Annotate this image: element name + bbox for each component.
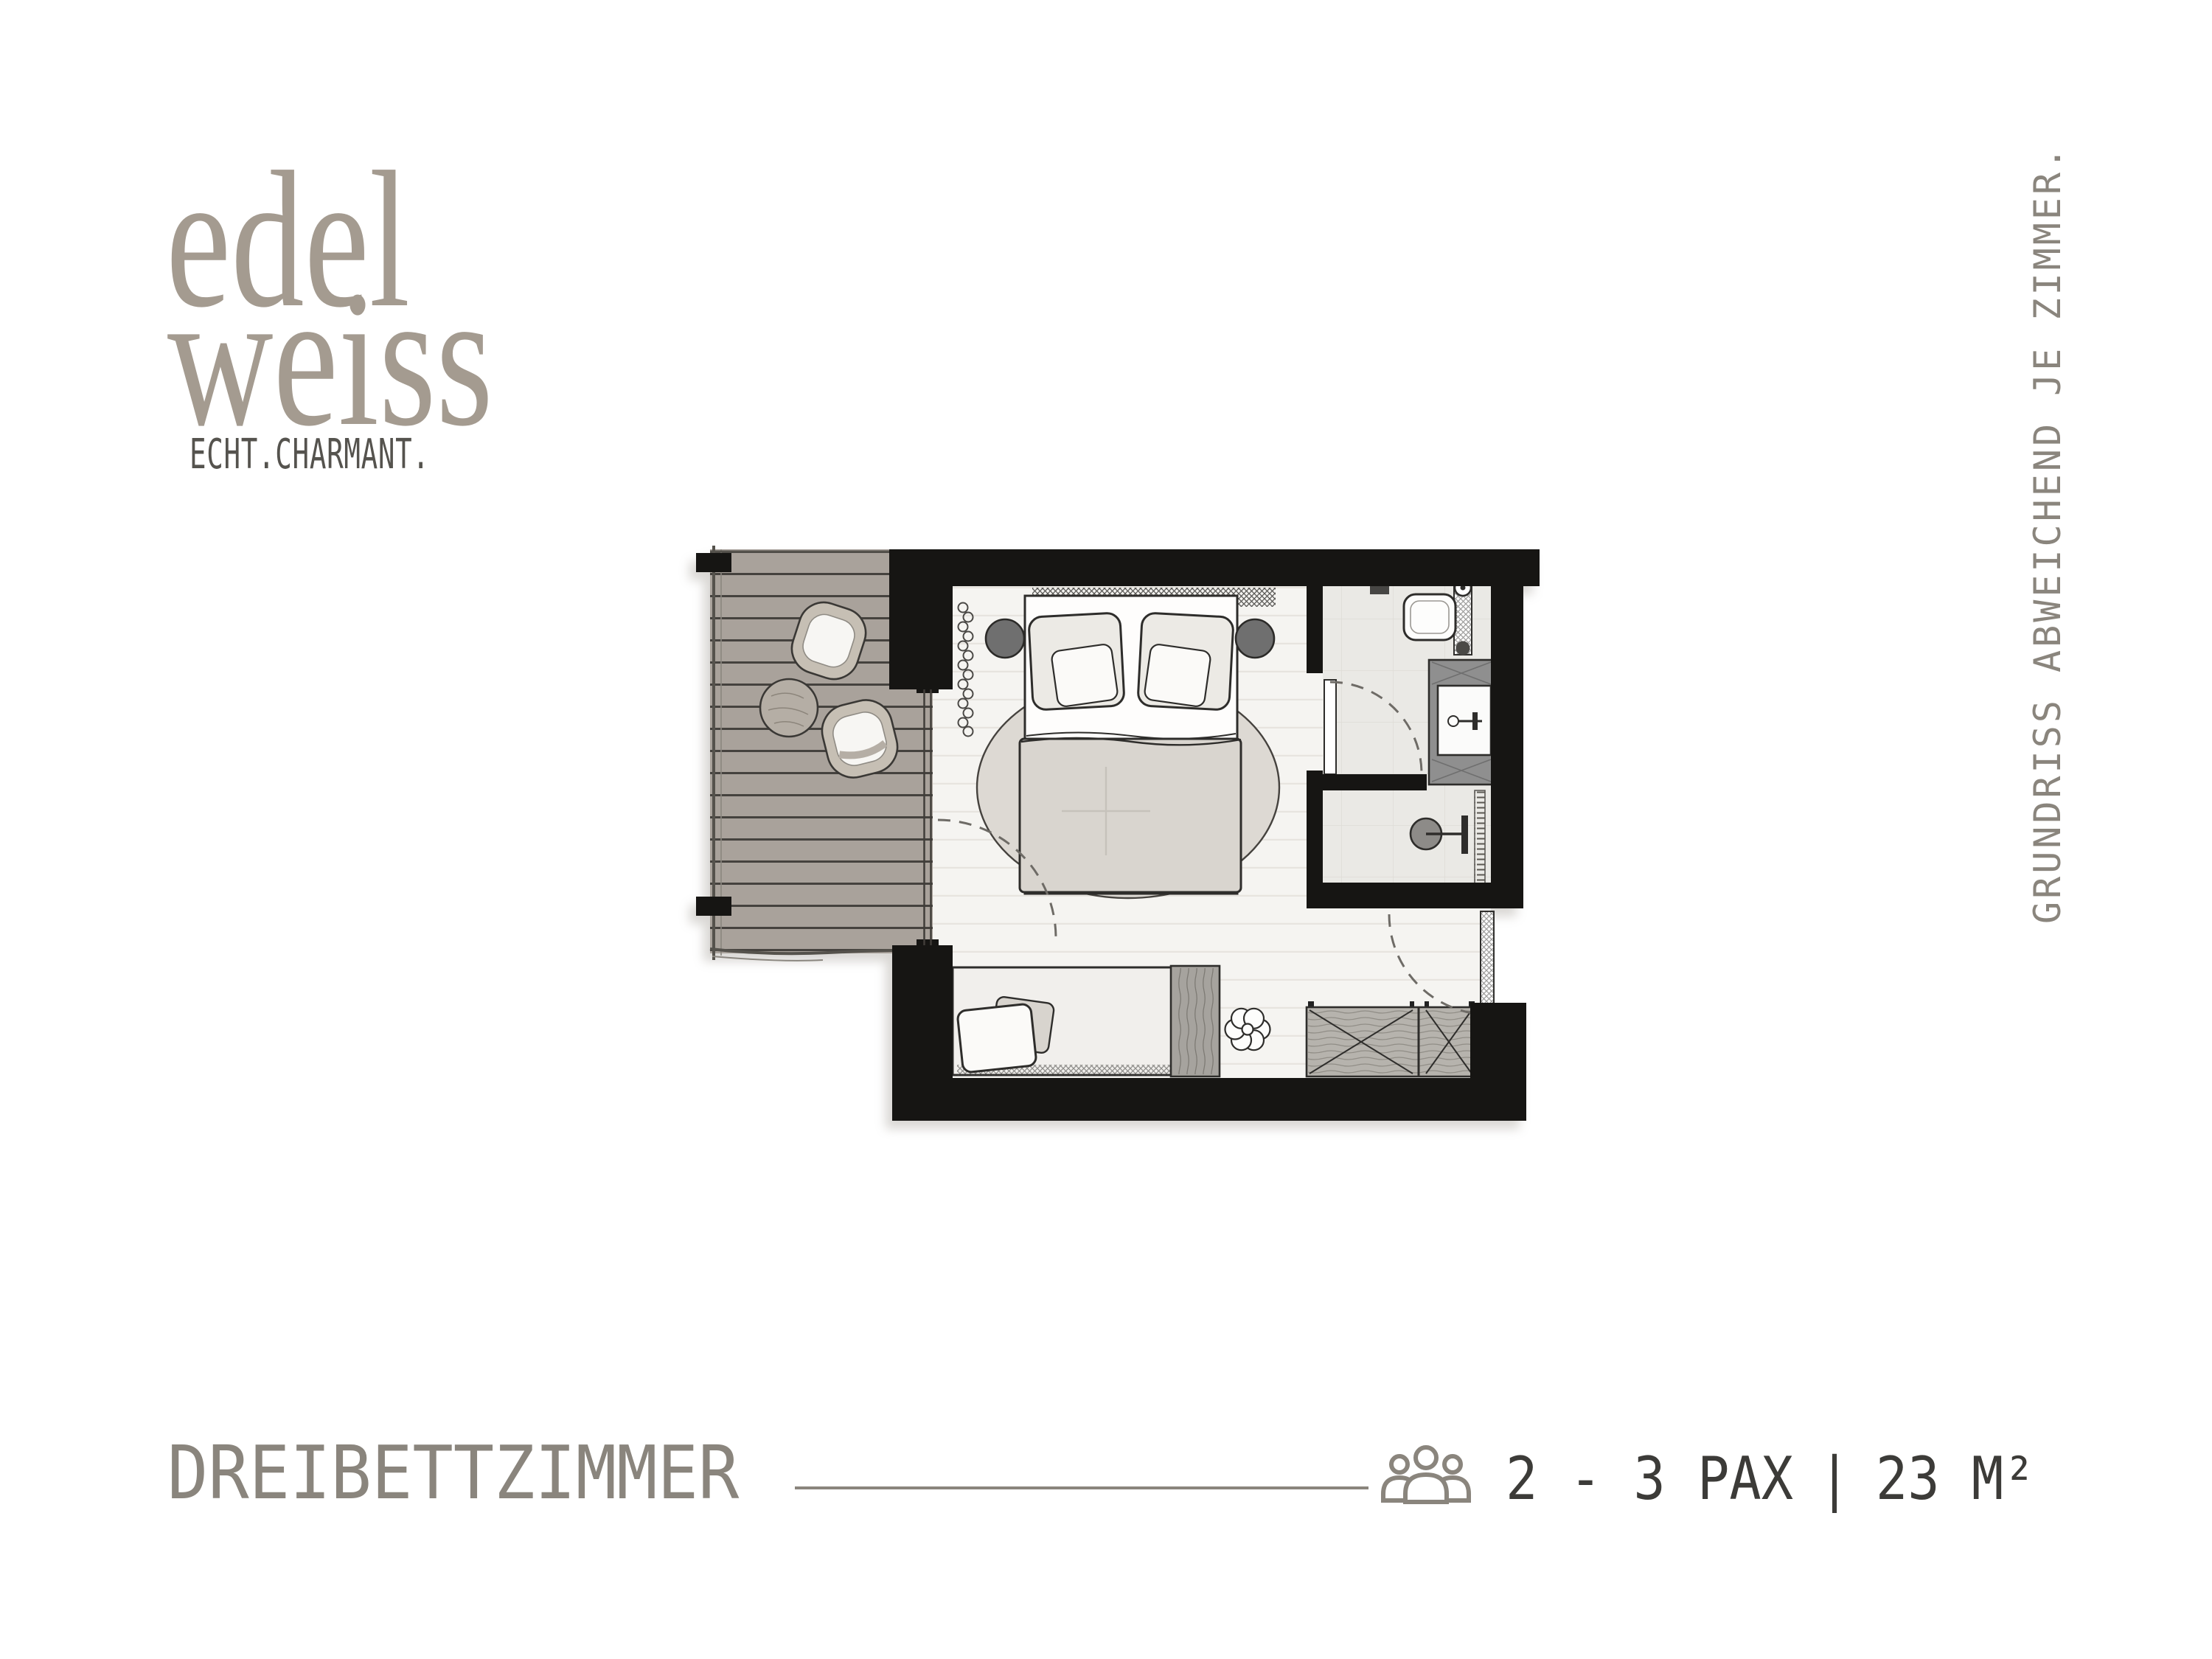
- people-group-icon: [1377, 1442, 1475, 1506]
- balcony-table: [760, 679, 818, 737]
- divider-line: [795, 1486, 1368, 1489]
- separator: |: [1818, 1448, 1850, 1510]
- washbasin-vanity: [1429, 660, 1494, 785]
- area-value: 23 M²: [1876, 1448, 2036, 1510]
- room-type-title: DREIBETTZIMMER: [167, 1433, 739, 1514]
- wardrobe-divider: [1171, 966, 1220, 1077]
- occupancy-row: 2 - 3 PAX | 23 M²: [1506, 1448, 2036, 1510]
- shower-glass: [1475, 790, 1485, 883]
- bed-duvet: [1020, 738, 1241, 892]
- page: edel weiss ECHT.CHARMANT. GRUNDRISS ABWE…: [0, 0, 2212, 1659]
- nightstand-left: [986, 619, 1024, 658]
- luggage-bench: [1307, 1001, 1475, 1077]
- floor-plan: [0, 0, 2212, 1659]
- flower-stool: [1225, 1009, 1270, 1050]
- nightstand-right: [1236, 619, 1274, 658]
- single-bed: [953, 967, 1172, 1076]
- occupancy-value: 2 - 3 PAX: [1506, 1448, 1793, 1510]
